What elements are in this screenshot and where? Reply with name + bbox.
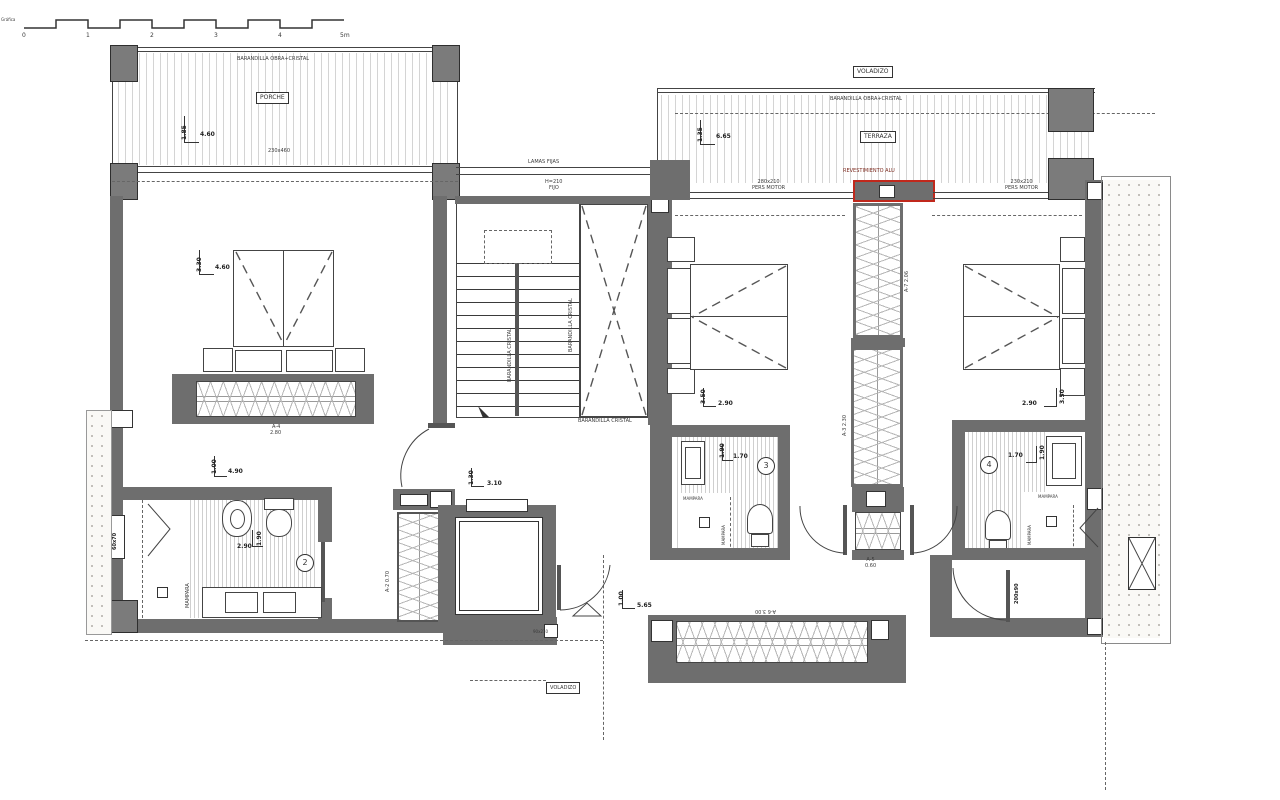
shaft-cross: [1129, 538, 1155, 589]
shower-door-mark: [1080, 508, 1098, 547]
void-x-dashed: [582, 206, 646, 415]
door-arc: [560, 565, 610, 610]
stair-direction-arrow: [478, 406, 489, 418]
bed3-diagonals: [692, 266, 786, 368]
linework-overlay: [0, 0, 1280, 800]
threshold-triangle: [573, 603, 601, 616]
door-arc: [800, 506, 845, 553]
bed4-diagonals: [965, 266, 1058, 368]
shower-door-mark: [148, 504, 170, 556]
door-arc: [953, 568, 1006, 620]
scale-bar: [24, 20, 344, 28]
floor-plan-canvas: Gráfica 0 1 2 3 4 5m BARANDILLA OBRA+CRI…: [0, 0, 1280, 800]
door-arc: [401, 429, 429, 487]
door-arc: [912, 506, 957, 553]
bed-master-diagonals: [236, 252, 332, 343]
